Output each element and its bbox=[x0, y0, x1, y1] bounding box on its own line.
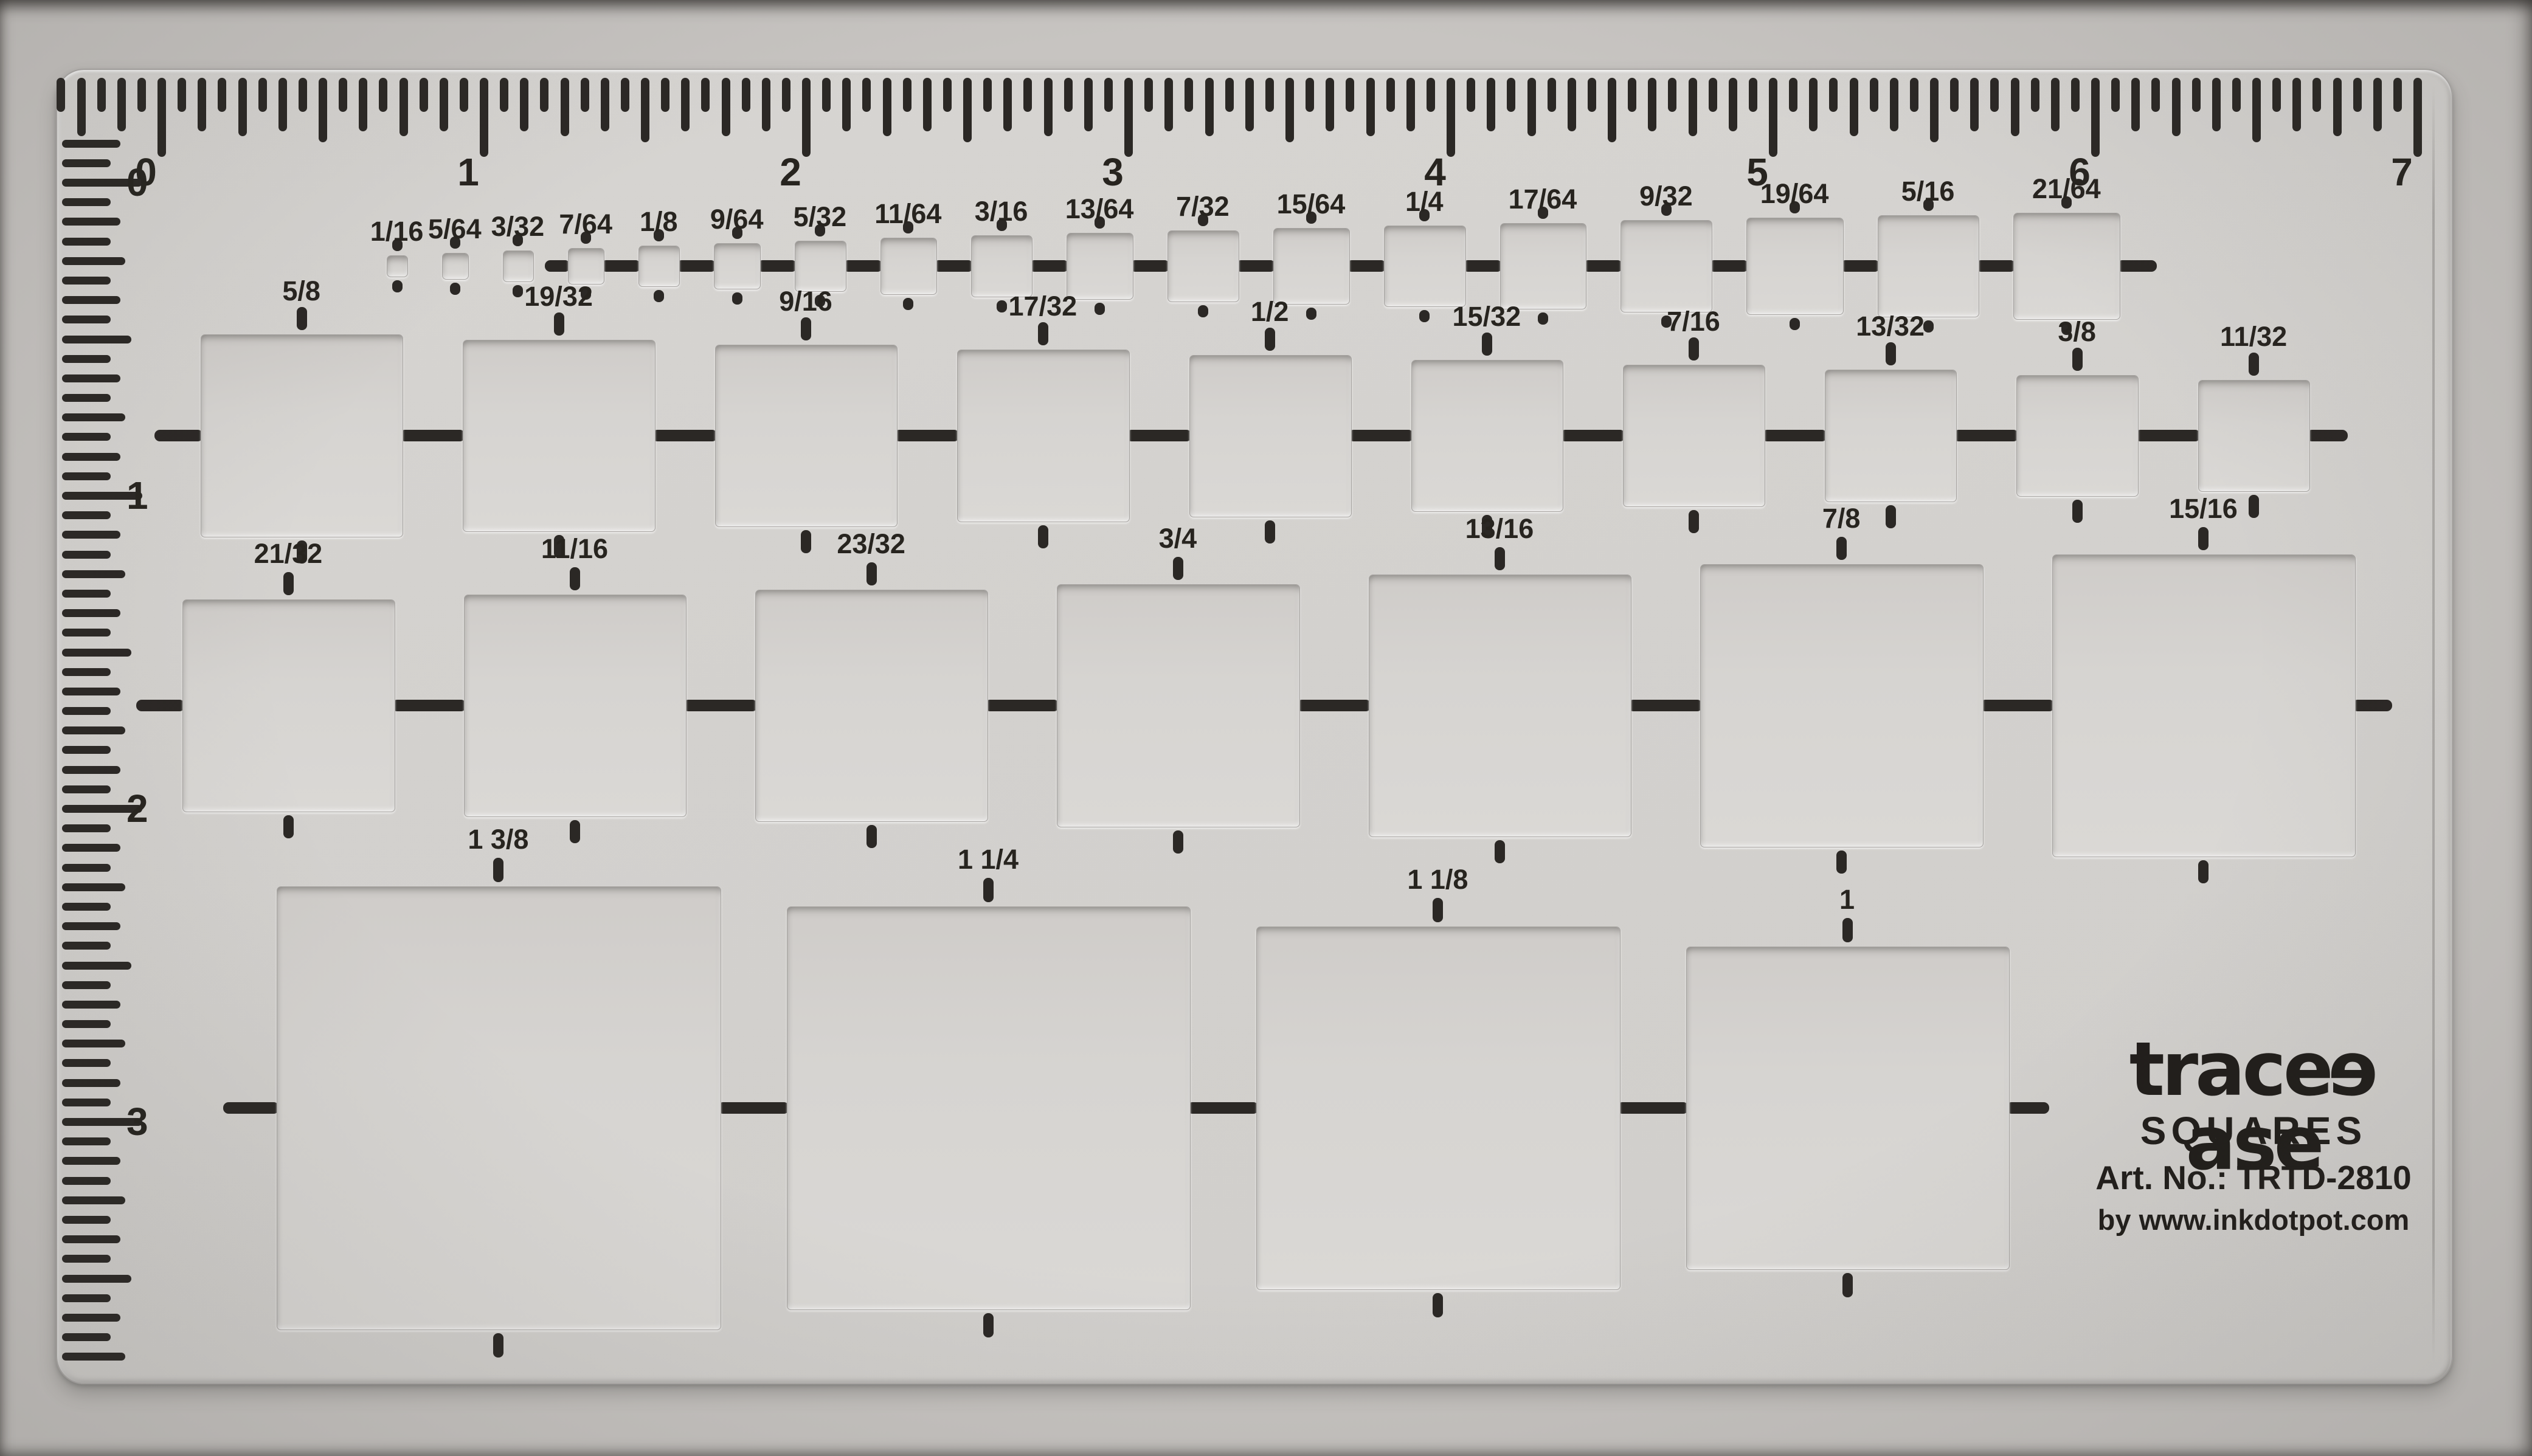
left-ruler-tick bbox=[62, 942, 111, 950]
bottom-alignment-stub bbox=[1836, 850, 1847, 874]
top-ruler-tick bbox=[117, 78, 126, 131]
manufacturer-byline: by www.inkdotpot.com bbox=[2067, 1205, 2440, 1235]
left-ruler-tick bbox=[62, 726, 125, 734]
left-ruler-tick bbox=[62, 962, 131, 970]
square-cutout-17-32 bbox=[957, 350, 1130, 522]
top-ruler-tick bbox=[1749, 78, 1757, 112]
top-ruler-tick bbox=[1064, 78, 1073, 112]
square-size-label: 9/32 bbox=[1599, 181, 1733, 212]
brand-logo-part: trace bbox=[2129, 1026, 2331, 1113]
left-ruler-tick bbox=[62, 1294, 111, 1302]
alignment-line bbox=[545, 260, 570, 272]
square-size-label: 3/8 bbox=[2010, 317, 2144, 347]
top-ruler-tick bbox=[1447, 78, 1455, 157]
square-size-label: 13/16 bbox=[1433, 514, 1566, 544]
left-ruler-tick bbox=[62, 257, 125, 265]
top-ruler-tick bbox=[1406, 78, 1415, 131]
top-alignment-stub bbox=[2249, 353, 2259, 376]
square-cutout-13-16 bbox=[1369, 574, 1632, 838]
square-cutout-1-16 bbox=[387, 255, 408, 277]
square-cutout-11-64 bbox=[880, 238, 937, 294]
top-ruler-tick bbox=[1809, 78, 1818, 131]
square-size-label: 7/16 bbox=[1627, 306, 1760, 337]
left-ruler-tick bbox=[62, 1333, 111, 1341]
top-ruler-tick bbox=[802, 78, 811, 157]
left-ruler-tick bbox=[62, 570, 125, 578]
top-ruler-tick bbox=[782, 78, 790, 112]
top-alignment-stub bbox=[297, 307, 307, 330]
square-size-label: 11/16 bbox=[508, 534, 642, 564]
alignment-line bbox=[2117, 260, 2157, 272]
top-ruler-tick bbox=[1930, 78, 1939, 142]
bottom-alignment-stub bbox=[1790, 318, 1800, 330]
alignment-line bbox=[136, 700, 185, 711]
top-ruler-tick bbox=[2353, 78, 2362, 112]
top-ruler-tick bbox=[2111, 78, 2120, 112]
top-ruler-tick bbox=[339, 78, 347, 112]
alignment-line bbox=[1980, 700, 2055, 711]
top-ruler-tick bbox=[903, 78, 911, 112]
alignment-line bbox=[652, 430, 718, 441]
top-ruler-tick bbox=[1829, 78, 1838, 112]
left-ruler-tick bbox=[62, 374, 120, 382]
top-ruler-tick bbox=[963, 78, 972, 142]
left-ruler-tick bbox=[62, 1216, 111, 1224]
top-alignment-stub bbox=[1482, 333, 1492, 356]
square-size-label: 13/32 bbox=[1824, 311, 1957, 342]
top-ruler-tick bbox=[97, 78, 106, 112]
left-ruler-tick bbox=[62, 433, 111, 441]
top-ruler-tick bbox=[1346, 78, 1354, 112]
top-ruler-tick bbox=[1084, 78, 1093, 131]
left-ruler-tick bbox=[62, 336, 131, 343]
top-ruler-tick bbox=[1608, 78, 1616, 142]
top-ruler-tick bbox=[299, 78, 307, 112]
square-cutout-7-16 bbox=[1623, 365, 1765, 507]
top-ruler-tick bbox=[1689, 78, 1697, 136]
left-ruler-tick bbox=[62, 472, 111, 480]
left-ruler-tick bbox=[62, 981, 111, 989]
top-ruler-tick bbox=[379, 78, 387, 112]
top-alignment-stub bbox=[866, 562, 877, 585]
left-ruler-tick bbox=[62, 1196, 125, 1204]
top-ruler-tick bbox=[2151, 78, 2160, 112]
left-ruler-number: 2 bbox=[126, 787, 185, 830]
left-ruler-tick bbox=[62, 766, 120, 774]
square-size-label: 11/32 bbox=[2187, 322, 2320, 352]
square-cutout-15-32 bbox=[1411, 360, 1563, 512]
top-alignment-stub bbox=[1173, 557, 1183, 580]
top-ruler-tick bbox=[1568, 78, 1576, 131]
square-cutout-5-16 bbox=[1878, 215, 1980, 317]
top-alignment-stub bbox=[801, 317, 811, 340]
top-ruler-tick bbox=[1023, 78, 1032, 112]
left-ruler-tick bbox=[62, 746, 111, 754]
square-cutout-11-32 bbox=[2198, 380, 2310, 492]
left-ruler-tick bbox=[62, 668, 111, 676]
top-ruler-tick bbox=[2292, 78, 2301, 131]
top-ruler-tick bbox=[178, 78, 186, 112]
square-cutout-1-2 bbox=[1189, 355, 1352, 517]
bottom-alignment-stub bbox=[1689, 510, 1699, 533]
square-size-label: 21/64 bbox=[1999, 174, 2133, 204]
left-ruler-tick bbox=[62, 688, 120, 695]
top-ruler-tick bbox=[681, 78, 690, 131]
alignment-line bbox=[400, 430, 465, 441]
alignment-line bbox=[1236, 260, 1276, 272]
photo-stage: 0123456701231/165/643/327/641/89/645/321… bbox=[0, 0, 2532, 1456]
top-ruler-tick bbox=[137, 78, 146, 112]
left-ruler-tick bbox=[62, 922, 120, 930]
left-ruler-tick bbox=[62, 1314, 120, 1322]
square-cutout-1-1-8 bbox=[1256, 926, 1620, 1290]
top-ruler-tick bbox=[520, 78, 528, 131]
top-ruler-tick bbox=[842, 78, 851, 131]
alignment-line bbox=[1348, 430, 1414, 441]
top-ruler-tick bbox=[1487, 78, 1495, 131]
left-ruler-tick bbox=[62, 1157, 120, 1165]
alignment-line bbox=[894, 430, 960, 441]
left-ruler-tick bbox=[62, 1099, 111, 1106]
top-ruler-tick bbox=[1870, 78, 1878, 112]
square-size-label: 9/16 bbox=[739, 286, 873, 317]
top-ruler-tick bbox=[238, 78, 247, 136]
top-ruler-tick bbox=[561, 78, 569, 136]
top-ruler-number: 2 bbox=[748, 151, 833, 193]
square-cutout-11-16 bbox=[464, 595, 687, 817]
alignment-line bbox=[601, 260, 641, 272]
square-cutout-19-32 bbox=[463, 340, 655, 533]
top-ruler-tick bbox=[400, 78, 408, 136]
top-alignment-stub bbox=[1495, 547, 1505, 570]
left-ruler-tick bbox=[62, 1177, 111, 1185]
top-ruler-tick bbox=[2172, 78, 2181, 136]
top-ruler-tick bbox=[2252, 78, 2261, 142]
top-ruler-tick bbox=[420, 78, 428, 112]
square-cutout-21-64 bbox=[2013, 213, 2120, 320]
bottom-alignment-stub bbox=[570, 820, 580, 843]
top-ruler-tick bbox=[157, 78, 166, 157]
square-cutout-15-16 bbox=[2052, 554, 2356, 858]
alignment-line bbox=[1709, 260, 1749, 272]
top-ruler-tick bbox=[1467, 78, 1475, 112]
top-ruler-tick bbox=[1890, 78, 1898, 131]
square-size-label: 17/64 bbox=[1476, 184, 1610, 215]
left-ruler-number: 3 bbox=[126, 1100, 185, 1143]
top-alignment-stub bbox=[1836, 537, 1847, 560]
left-ruler-tick bbox=[62, 707, 111, 715]
bottom-alignment-stub bbox=[450, 283, 460, 295]
top-ruler-tick bbox=[883, 78, 891, 136]
left-ruler-tick bbox=[62, 1275, 131, 1283]
article-number: Art. No.: TRTD-2810 bbox=[2067, 1160, 2440, 1195]
top-ruler-tick bbox=[2212, 78, 2221, 131]
bottom-alignment-stub bbox=[983, 1313, 994, 1337]
left-ruler-tick bbox=[62, 590, 111, 598]
product-name: SQUARES bbox=[2067, 1110, 2440, 1151]
alignment-line bbox=[2135, 430, 2201, 441]
top-ruler-tick bbox=[1990, 78, 1999, 112]
square-cutout-21-32 bbox=[182, 599, 395, 812]
top-ruler-tick bbox=[722, 78, 730, 136]
bottom-alignment-stub bbox=[903, 298, 913, 310]
left-ruler-tick bbox=[62, 316, 111, 323]
top-ruler-tick bbox=[2413, 78, 2422, 157]
square-size-label: 1 3/8 bbox=[431, 824, 565, 855]
square-size-label: 23/32 bbox=[804, 529, 938, 559]
top-ruler-tick bbox=[1164, 78, 1173, 131]
top-ruler-tick bbox=[1386, 78, 1395, 112]
top-alignment-stub bbox=[554, 312, 564, 336]
top-ruler-tick bbox=[1527, 78, 1536, 136]
alignment-line bbox=[1296, 700, 1371, 711]
alignment-line bbox=[2006, 1102, 2049, 1114]
square-cutout-3-32 bbox=[503, 250, 534, 282]
top-ruler-tick bbox=[500, 78, 508, 112]
left-ruler-number: 0 bbox=[126, 161, 185, 204]
top-ruler-tick bbox=[822, 78, 831, 112]
square-cutout-9-64 bbox=[714, 243, 761, 290]
bottom-alignment-stub bbox=[392, 280, 403, 292]
bottom-alignment-stub bbox=[1433, 1293, 1443, 1317]
top-alignment-stub bbox=[2198, 527, 2209, 550]
alignment-line bbox=[1617, 1102, 1689, 1114]
top-ruler-tick bbox=[1769, 78, 1777, 157]
top-alignment-stub bbox=[2072, 348, 2083, 371]
left-ruler-tick bbox=[62, 1001, 120, 1009]
bottom-alignment-stub bbox=[866, 825, 877, 848]
top-ruler-tick bbox=[1003, 78, 1012, 131]
left-ruler-tick bbox=[62, 198, 111, 206]
square-size-label: 1/2 bbox=[1203, 297, 1337, 327]
top-ruler-tick bbox=[2393, 78, 2402, 112]
alignment-line bbox=[1583, 260, 1623, 272]
alignment-line bbox=[1560, 430, 1625, 441]
alignment-line bbox=[1346, 260, 1386, 272]
left-ruler-tick bbox=[62, 531, 120, 539]
left-ruler-tick bbox=[62, 218, 120, 226]
top-ruler-tick bbox=[1628, 78, 1636, 112]
bottom-alignment-stub bbox=[1038, 525, 1048, 548]
square-cutout-3-8 bbox=[2016, 375, 2139, 497]
top-ruler-tick bbox=[2192, 78, 2201, 112]
square-size-label: 1 1/8 bbox=[1371, 864, 1504, 895]
top-ruler-tick bbox=[359, 78, 367, 131]
top-ruler-tick bbox=[661, 78, 669, 112]
top-ruler-tick bbox=[1366, 78, 1375, 136]
left-ruler-tick bbox=[62, 453, 120, 461]
left-ruler-tick bbox=[62, 1079, 120, 1087]
top-ruler-tick bbox=[1185, 78, 1193, 112]
top-ruler-tick bbox=[1205, 78, 1214, 136]
square-cutout-5-32 bbox=[795, 241, 846, 292]
left-ruler-tick bbox=[62, 1255, 111, 1263]
left-ruler-tick bbox=[62, 1020, 111, 1028]
left-ruler-tick bbox=[62, 1353, 125, 1361]
left-ruler-tick bbox=[62, 413, 125, 421]
square-size-label: 7/8 bbox=[1774, 503, 1908, 534]
top-ruler-tick bbox=[1225, 78, 1234, 112]
top-ruler-tick bbox=[2071, 78, 2080, 112]
square-size-label: 5/8 bbox=[235, 276, 368, 306]
bottom-alignment-stub bbox=[493, 1333, 503, 1358]
top-alignment-stub bbox=[570, 567, 580, 590]
top-ruler-tick bbox=[1668, 78, 1676, 112]
top-ruler-tick bbox=[258, 78, 267, 112]
alignment-line bbox=[933, 260, 974, 272]
alignment-line bbox=[223, 1102, 279, 1114]
square-size-label: 21/32 bbox=[221, 539, 355, 569]
top-ruler-tick bbox=[2232, 78, 2241, 112]
top-ruler-tick bbox=[278, 78, 287, 131]
top-ruler-tick bbox=[943, 78, 952, 112]
top-ruler-tick bbox=[440, 78, 448, 131]
top-ruler-tick bbox=[621, 78, 629, 112]
top-ruler-tick bbox=[2031, 78, 2039, 112]
square-cutout-1-1-4 bbox=[787, 906, 1191, 1311]
square-cutout-7-8 bbox=[1700, 564, 1984, 847]
bottom-alignment-stub bbox=[1173, 830, 1183, 854]
top-ruler-tick bbox=[1427, 78, 1435, 112]
top-alignment-stub bbox=[283, 572, 294, 595]
left-ruler-tick bbox=[62, 883, 125, 891]
square-cutout-7-32 bbox=[1167, 230, 1239, 302]
top-ruler-tick bbox=[77, 78, 86, 136]
top-alignment-stub bbox=[1689, 337, 1699, 361]
alignment-line bbox=[2352, 700, 2392, 711]
square-cutout-19-64 bbox=[1746, 218, 1843, 314]
alignment-line bbox=[718, 1102, 789, 1114]
left-ruler-tick bbox=[62, 277, 111, 285]
top-ruler-tick bbox=[1104, 78, 1113, 112]
left-ruler-tick bbox=[62, 903, 111, 911]
top-ruler-tick bbox=[1910, 78, 1918, 112]
top-ruler-tick bbox=[1124, 78, 1133, 157]
top-alignment-stub bbox=[983, 878, 994, 902]
top-ruler-number: 3 bbox=[1070, 151, 1155, 193]
top-ruler-tick bbox=[2051, 78, 2060, 131]
square-size-label: 1/4 bbox=[1357, 187, 1491, 217]
top-ruler-tick bbox=[762, 78, 770, 131]
left-ruler-tick bbox=[62, 649, 131, 657]
top-ruler-tick bbox=[1144, 78, 1153, 112]
square-cutout-3-4 bbox=[1057, 584, 1300, 827]
square-size-label: 19/32 bbox=[492, 281, 626, 312]
left-ruler-tick bbox=[62, 511, 111, 519]
top-ruler-tick bbox=[1789, 78, 1797, 112]
square-cutout-1-4 bbox=[1384, 226, 1466, 308]
square-cutout-1-8 bbox=[638, 246, 680, 287]
top-alignment-stub bbox=[1842, 918, 1853, 942]
top-ruler-tick bbox=[319, 78, 327, 142]
square-cutout-9-32 bbox=[1621, 220, 1712, 312]
alignment-line bbox=[757, 260, 797, 272]
left-ruler-tick bbox=[62, 140, 120, 148]
top-ruler-tick bbox=[1588, 78, 1596, 112]
top-ruler-tick bbox=[1950, 78, 1959, 112]
top-ruler-tick bbox=[1326, 78, 1334, 131]
top-ruler-tick bbox=[2272, 78, 2281, 112]
left-ruler-tick bbox=[62, 629, 111, 637]
alignment-line bbox=[676, 260, 716, 272]
alignment-line bbox=[1130, 260, 1170, 272]
top-ruler-tick bbox=[2333, 78, 2342, 136]
bottom-alignment-stub bbox=[654, 290, 664, 302]
top-alignment-stub bbox=[1265, 328, 1275, 351]
top-ruler-tick bbox=[2091, 78, 2100, 157]
left-ruler-tick bbox=[62, 238, 111, 246]
square-size-label: 5/16 bbox=[1861, 176, 1995, 207]
alignment-line bbox=[984, 700, 1059, 711]
top-alignment-stub bbox=[493, 858, 503, 882]
square-size-label: 1 1/4 bbox=[921, 844, 1055, 875]
top-ruler-tick bbox=[983, 78, 992, 112]
square-size-label: 15/16 bbox=[2136, 494, 2270, 524]
top-ruler-tick bbox=[1285, 78, 1294, 142]
square-cutout-5-8 bbox=[201, 334, 403, 537]
top-ruler-tick bbox=[1044, 78, 1053, 136]
left-ruler-tick bbox=[62, 1235, 120, 1243]
square-cutout-1-3-8 bbox=[277, 886, 721, 1331]
left-ruler-tick bbox=[62, 1059, 111, 1067]
top-ruler-tick bbox=[1265, 78, 1274, 112]
left-ruler-tick bbox=[62, 394, 111, 402]
top-ruler-tick bbox=[1709, 78, 1717, 112]
top-ruler-tick bbox=[1648, 78, 1656, 131]
top-ruler-tick bbox=[1507, 78, 1515, 112]
left-ruler-tick bbox=[62, 864, 111, 872]
square-cutout-5-64 bbox=[442, 253, 468, 279]
top-ruler-tick bbox=[1306, 78, 1314, 112]
left-ruler-tick bbox=[62, 844, 120, 852]
top-alignment-stub bbox=[1038, 322, 1048, 345]
alignment-line bbox=[1976, 260, 2016, 272]
brand-logo-mirrored-e: e bbox=[2331, 1032, 2378, 1106]
alignment-line bbox=[1840, 260, 1880, 272]
bottom-alignment-stub bbox=[283, 815, 294, 838]
square-cutout-7-64 bbox=[568, 248, 604, 285]
alignment-line bbox=[1953, 430, 2019, 441]
top-ruler-tick bbox=[1548, 78, 1556, 112]
top-ruler-tick bbox=[581, 78, 589, 112]
top-ruler-tick bbox=[480, 78, 488, 157]
left-ruler-tick bbox=[62, 785, 111, 793]
alignment-line bbox=[1029, 260, 1069, 272]
square-cutout-13-32 bbox=[1825, 370, 1957, 502]
left-ruler-tick bbox=[62, 1040, 125, 1047]
left-ruler-tick bbox=[62, 609, 120, 617]
square-cutout-9-16 bbox=[715, 345, 898, 527]
square-cutout-17-64 bbox=[1500, 223, 1587, 310]
alignment-line bbox=[1628, 700, 1703, 711]
bottom-alignment-stub bbox=[1842, 1273, 1853, 1297]
top-ruler-tick bbox=[540, 78, 548, 112]
square-size-label: 19/64 bbox=[1728, 179, 1861, 209]
top-ruler-tick bbox=[2131, 78, 2140, 131]
left-ruler-tick bbox=[62, 159, 111, 167]
square-size-label: 15/32 bbox=[1420, 302, 1554, 332]
left-ruler-tick bbox=[62, 551, 111, 559]
top-ruler-tick bbox=[701, 78, 710, 112]
square-cutout-13-64 bbox=[1067, 233, 1133, 300]
top-ruler-number: 7 bbox=[2359, 151, 2444, 193]
square-size-label: 3/4 bbox=[1111, 523, 1245, 554]
top-ruler-tick bbox=[641, 78, 649, 142]
top-ruler-tick bbox=[2373, 78, 2382, 131]
top-ruler-tick bbox=[460, 78, 468, 112]
bottom-alignment-stub bbox=[2072, 500, 2083, 523]
alignment-line bbox=[1187, 1102, 1259, 1114]
